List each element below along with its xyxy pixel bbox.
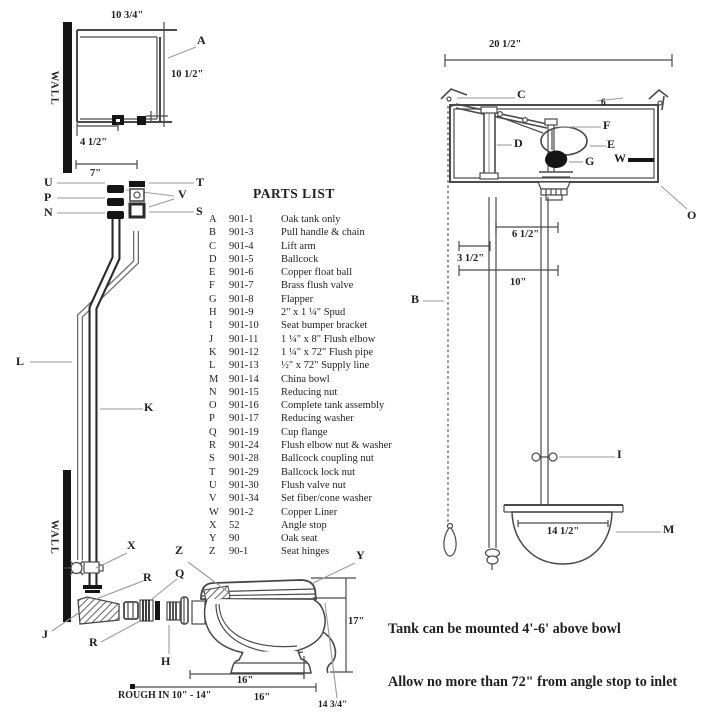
part-number: 901-4	[229, 240, 281, 253]
callout-O: O	[687, 209, 696, 221]
dim-label-6: 6	[601, 99, 606, 109]
lower-left-assembly	[52, 470, 188, 654]
part-number: 901-14	[229, 373, 281, 386]
part-desc: Seat hinges	[281, 545, 407, 558]
dim-20-12	[445, 54, 672, 67]
part-desc: 1 ¼" x 8" Flush elbow	[281, 333, 407, 346]
part-key: F	[202, 279, 229, 292]
part-desc: ½" x 72" Supply line	[281, 359, 407, 372]
part-number: 901-11	[229, 333, 281, 346]
dim-label-6-12: 6 1/2"	[512, 230, 539, 241]
dim-label-20-12: 20 1/2"	[489, 40, 521, 51]
parts-list-row: Z 90-1 Seat hinges	[202, 545, 407, 558]
dim-label-17: 17"	[348, 617, 364, 628]
dim-label-16a: 16"	[231, 676, 259, 687]
callout-X: X	[127, 539, 136, 551]
callout-D: D	[514, 137, 523, 149]
callout-R2: R	[89, 636, 98, 648]
leader-X	[96, 553, 127, 568]
ballcock-coupling-nut	[130, 204, 144, 217]
washer	[155, 601, 160, 620]
part-number: 901-6	[229, 266, 281, 279]
part-number: 901-1	[229, 213, 281, 226]
callout-J: J	[42, 628, 48, 640]
part-desc: Ballcock lock nut	[281, 466, 407, 479]
callout-U: U	[44, 176, 53, 188]
part-desc: Flush valve nut	[281, 479, 407, 492]
dim-label-10: 10"	[510, 278, 526, 289]
part-key: N	[202, 386, 229, 399]
part-desc: Reducing washer	[281, 412, 407, 425]
wall-bar-top	[63, 22, 72, 173]
callout-N: N	[44, 206, 53, 218]
ballcock-hole	[137, 116, 146, 125]
dim-label-14-34: 14 3/4"	[318, 701, 347, 711]
parts-list: A 901-1 Oak tank only B 901-3 Pull handl…	[202, 213, 407, 559]
part-key: Y	[202, 532, 229, 545]
flush-valve-nut	[107, 185, 124, 193]
callout-K: K	[144, 401, 153, 413]
part-key: W	[202, 506, 229, 519]
callout-E: E	[607, 138, 615, 150]
callout-I: I	[617, 448, 622, 460]
part-key: B	[202, 226, 229, 239]
part-number: 901-34	[229, 492, 281, 505]
chain-pull	[444, 528, 456, 556]
part-desc: Copper Liner	[281, 506, 407, 519]
part-number: 901-3	[229, 226, 281, 239]
part-key: R	[202, 439, 229, 452]
wall-label-top: WALL	[48, 67, 59, 109]
note-line-1: Tank can be mounted 4'-6' above bowl	[388, 621, 677, 639]
part-key: V	[202, 492, 229, 505]
callout-G: G	[585, 155, 594, 167]
callout-R1: R	[143, 571, 152, 583]
callout-V: V	[178, 188, 187, 200]
callout-T: T	[196, 176, 204, 188]
parts-list-row: P 901-17 Reducing washer	[202, 412, 407, 425]
part-number: 901-24	[229, 439, 281, 452]
flush-elbow-nut	[124, 602, 138, 619]
mounting-notes: Tank can be mounted 4'-6' above bowl All…	[388, 586, 677, 725]
dim-label-3-12: 3 1/2"	[457, 254, 484, 265]
parts-list-row: J 901-11 1 ¼" x 8" Flush elbow	[202, 333, 407, 346]
flush-elbow	[78, 597, 119, 624]
parts-list-row: Y 90 Oak seat	[202, 532, 407, 545]
tank-plan-view	[63, 22, 196, 173]
leader-A	[168, 47, 196, 58]
part-desc: Ballcock coupling nut	[281, 452, 407, 465]
part-desc: Brass flush valve	[281, 279, 407, 292]
bowl-inlet	[192, 601, 205, 624]
reducing-washer	[107, 198, 124, 206]
dim-10	[459, 265, 558, 276]
part-desc: Copper float ball	[281, 266, 407, 279]
parts-list-row: O 901-16 Complete tank assembly	[202, 399, 407, 412]
part-desc: Complete tank assembly	[281, 399, 407, 412]
seat-bumper-bracket	[532, 453, 540, 461]
callout-C: C	[517, 88, 526, 100]
part-number: 901-19	[229, 426, 281, 439]
callout-W: W	[614, 152, 626, 164]
flapper	[545, 151, 567, 168]
parts-list-row: K 901-12 1 ¼" x 72" Flush pipe	[202, 346, 407, 359]
part-desc: China bowl	[281, 373, 407, 386]
part-number: 901-12	[229, 346, 281, 359]
parts-list-row: D 901-5 Ballcock	[202, 253, 407, 266]
part-key: Q	[202, 426, 229, 439]
parts-list-row: F 901-7 Brass flush valve	[202, 279, 407, 292]
callout-P: P	[44, 191, 51, 203]
part-key: S	[202, 452, 229, 465]
part-desc: Ballcock	[281, 253, 407, 266]
wall-label-bottom: WALL	[48, 516, 59, 558]
part-number: 52	[229, 519, 281, 532]
dim-label-16b: 16"	[248, 693, 276, 704]
ballcock	[484, 112, 495, 174]
right-assembly	[423, 54, 687, 570]
part-key: X	[202, 519, 229, 532]
part-key: T	[202, 466, 229, 479]
part-key: G	[202, 293, 229, 306]
leader-Y	[313, 563, 355, 583]
parts-list-row: H 901-9 2" x 1 ¼" Spud	[202, 306, 407, 319]
part-number: 901-30	[229, 479, 281, 492]
rough-in-label: ROUGH IN 10" - 14"	[118, 691, 211, 701]
parts-list-row: A 901-1 Oak tank only	[202, 213, 407, 226]
part-key: A	[202, 213, 229, 226]
part-key: L	[202, 359, 229, 372]
leader-R2	[101, 621, 140, 642]
callout-B: B	[411, 293, 419, 305]
callout-H: H	[161, 655, 170, 667]
parts-list-row: U 901-30 Flush valve nut	[202, 479, 407, 492]
flush-pipe-right	[541, 197, 548, 505]
part-key: M	[202, 373, 229, 386]
parts-list-row: L 901-13 ½" x 72" Supply line	[202, 359, 407, 372]
part-desc: Reducing nut	[281, 386, 407, 399]
part-number: 90	[229, 532, 281, 545]
dim-label-10-34: 10 3/4"	[101, 11, 153, 22]
part-number: 901-8	[229, 293, 281, 306]
part-key: P	[202, 412, 229, 425]
reducing-nut	[107, 211, 124, 219]
part-desc: Oak tank only	[281, 213, 407, 226]
part-key: H	[202, 306, 229, 319]
parts-list-row: T 901-29 Ballcock lock nut	[202, 466, 407, 479]
parts-list-row: Q 901-19 Cup flange	[202, 426, 407, 439]
part-key: E	[202, 266, 229, 279]
diagram-page: WALL WALL 10 3/4" A 10 1/2" 4 1/2" 7" U …	[0, 0, 720, 725]
callout-Z: Z	[175, 544, 183, 556]
parts-list-row: C 901-4 Lift arm	[202, 240, 407, 253]
part-key: Z	[202, 545, 229, 558]
part-number: 901-15	[229, 386, 281, 399]
bowl-base	[231, 651, 311, 673]
part-desc: Flapper	[281, 293, 407, 306]
callout-A: A	[197, 34, 206, 46]
ballcock-lock-nut	[129, 181, 145, 187]
part-key: D	[202, 253, 229, 266]
part-desc: Flush elbow nut & washer	[281, 439, 407, 452]
part-desc: Cup flange	[281, 426, 407, 439]
leader-Q	[152, 579, 177, 599]
dim-label-14-12: 14 1/2"	[540, 527, 586, 538]
part-number: 901-29	[229, 466, 281, 479]
dim-label-7: 7"	[90, 169, 101, 180]
part-number: 901-5	[229, 253, 281, 266]
part-key: I	[202, 319, 229, 332]
exploded-nut-stack	[57, 181, 194, 219]
part-number: 901-9	[229, 306, 281, 319]
part-desc: Pull handle & chain	[281, 226, 407, 239]
callout-M: M	[663, 523, 674, 535]
parts-list-title: PARTS LIST	[253, 186, 335, 202]
parts-list-row: M 901-14 China bowl	[202, 373, 407, 386]
part-desc: 2" x 1 ¼" Spud	[281, 306, 407, 319]
parts-list-row: X 52 Angle stop	[202, 519, 407, 532]
note-line-2: Allow no more than 72" from angle stop t…	[388, 674, 677, 692]
parts-list-row: W 901-2 Copper Liner	[202, 506, 407, 519]
parts-list-row: G 901-8 Flapper	[202, 293, 407, 306]
part-desc: Oak seat	[281, 532, 407, 545]
flush-pipe	[93, 219, 116, 585]
tank-spud	[538, 182, 570, 189]
part-number: 901-10	[229, 319, 281, 332]
part-key: J	[202, 333, 229, 346]
part-key: C	[202, 240, 229, 253]
parts-list-row: S 901-28 Ballcock coupling nut	[202, 452, 407, 465]
part-number: 901-13	[229, 359, 281, 372]
china-bowl-dome	[512, 512, 612, 564]
part-number: 901-2	[229, 506, 281, 519]
part-number: 901-7	[229, 279, 281, 292]
parts-list-row: R 901-24 Flush elbow nut & washer	[202, 439, 407, 452]
parts-list-row: B 901-3 Pull handle & chain	[202, 226, 407, 239]
parts-list-row: V 901-34 Set fiber/cone washer	[202, 492, 407, 505]
part-desc: Angle stop	[281, 519, 407, 532]
parts-list-row: I 901-10 Seat bumper bracket	[202, 319, 407, 332]
part-number: 90-1	[229, 545, 281, 558]
part-key: U	[202, 479, 229, 492]
part-number: 901-17	[229, 412, 281, 425]
part-number: 901-28	[229, 452, 281, 465]
part-number: 901-16	[229, 399, 281, 412]
parts-list-row: E 901-6 Copper float ball	[202, 266, 407, 279]
parts-list-row: N 901-15 Reducing nut	[202, 386, 407, 399]
callout-L: L	[16, 355, 24, 367]
callout-F: F	[603, 119, 610, 131]
leader-O	[661, 186, 687, 209]
part-desc: Lift arm	[281, 240, 407, 253]
dim-label-10-12: 10 1/2"	[171, 70, 203, 81]
leader-R1	[96, 581, 143, 599]
part-key: O	[202, 399, 229, 412]
part-desc: 1 ¼" x 72" Flush pipe	[281, 346, 407, 359]
part-desc: Set fiber/cone washer	[281, 492, 407, 505]
callout-Q: Q	[175, 567, 184, 579]
dim-3-12	[459, 241, 490, 251]
wall-bar-bottom	[63, 470, 71, 622]
dim-label-4-12: 4 1/2"	[80, 138, 107, 149]
part-key: K	[202, 346, 229, 359]
part-desc: Seat bumper bracket	[281, 319, 407, 332]
